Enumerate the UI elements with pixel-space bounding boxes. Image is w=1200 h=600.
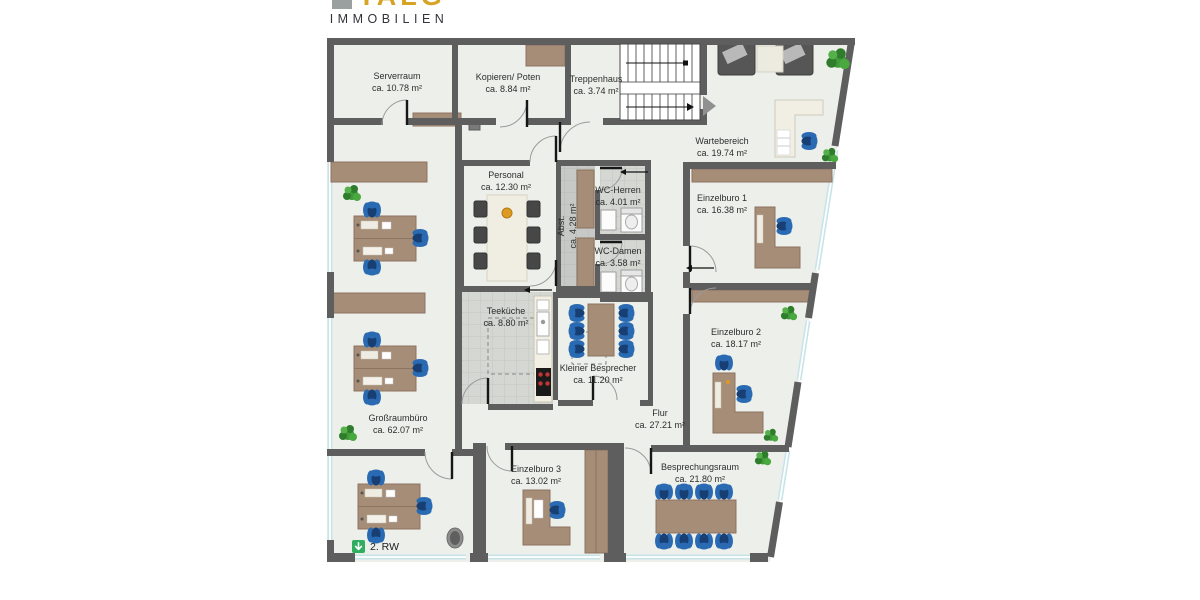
personal-table-group xyxy=(474,195,540,281)
wc-herren-fixtures xyxy=(601,208,642,232)
room-label-einzelburo3: Einzelburo 3 ca. 13.02 m² xyxy=(511,463,561,487)
room-label-einzelburo1: Einzelburo 1 ca. 16.38 m² xyxy=(697,192,747,216)
room-label-besprechungsraum: Besprechungsraum ca. 21.80 m² xyxy=(661,461,739,485)
conference-table-group xyxy=(655,484,736,550)
small-meeting-table-group xyxy=(569,304,635,364)
wc-damen-fixtures xyxy=(601,270,642,294)
room-label-wc-damen: WC-Damen ca. 3.58 m² xyxy=(594,245,641,269)
room-label-personal: Personal ca. 12.30 m² xyxy=(481,169,531,193)
room-label-wartebereich: Wartebereich ca. 19.74 m² xyxy=(695,135,748,159)
room-label-teekueche: Teeküche ca. 8.80 m² xyxy=(483,305,528,329)
waiting-side-table xyxy=(757,46,783,72)
room-label-abst: Abst. ca. 4.28 m² xyxy=(555,203,579,248)
room-label-serverraum: Serverraum ca. 10.78 m² xyxy=(372,70,422,94)
room-label-wc-herren: WC-Herren ca. 4.01 m² xyxy=(595,184,641,208)
escape-route-legend: 2. RW xyxy=(352,540,399,553)
escape-route-label: 2. RW xyxy=(370,541,399,553)
room-label-kleiner-besprecher: Kleiner Besprecher ca. 11.20 m² xyxy=(560,362,637,386)
escape-route-icon xyxy=(352,540,365,553)
room-label-treppenhaus: Treppenhaus ca. 3.74 m² xyxy=(570,73,623,97)
room-label-kopieren: Kopieren/ Poten ca. 8.84 m² xyxy=(476,71,541,95)
floorplan-page: TALG IMMOBILIEN xyxy=(0,0,1200,600)
room-label-grossraumbuero: Großraumbüro ca. 62.07 m² xyxy=(368,412,427,436)
room-label-flur: Flur ca. 27.21 m² xyxy=(635,407,685,431)
room-label-einzelburo2: Einzelburo 2 ca. 18.17 m² xyxy=(711,326,761,350)
